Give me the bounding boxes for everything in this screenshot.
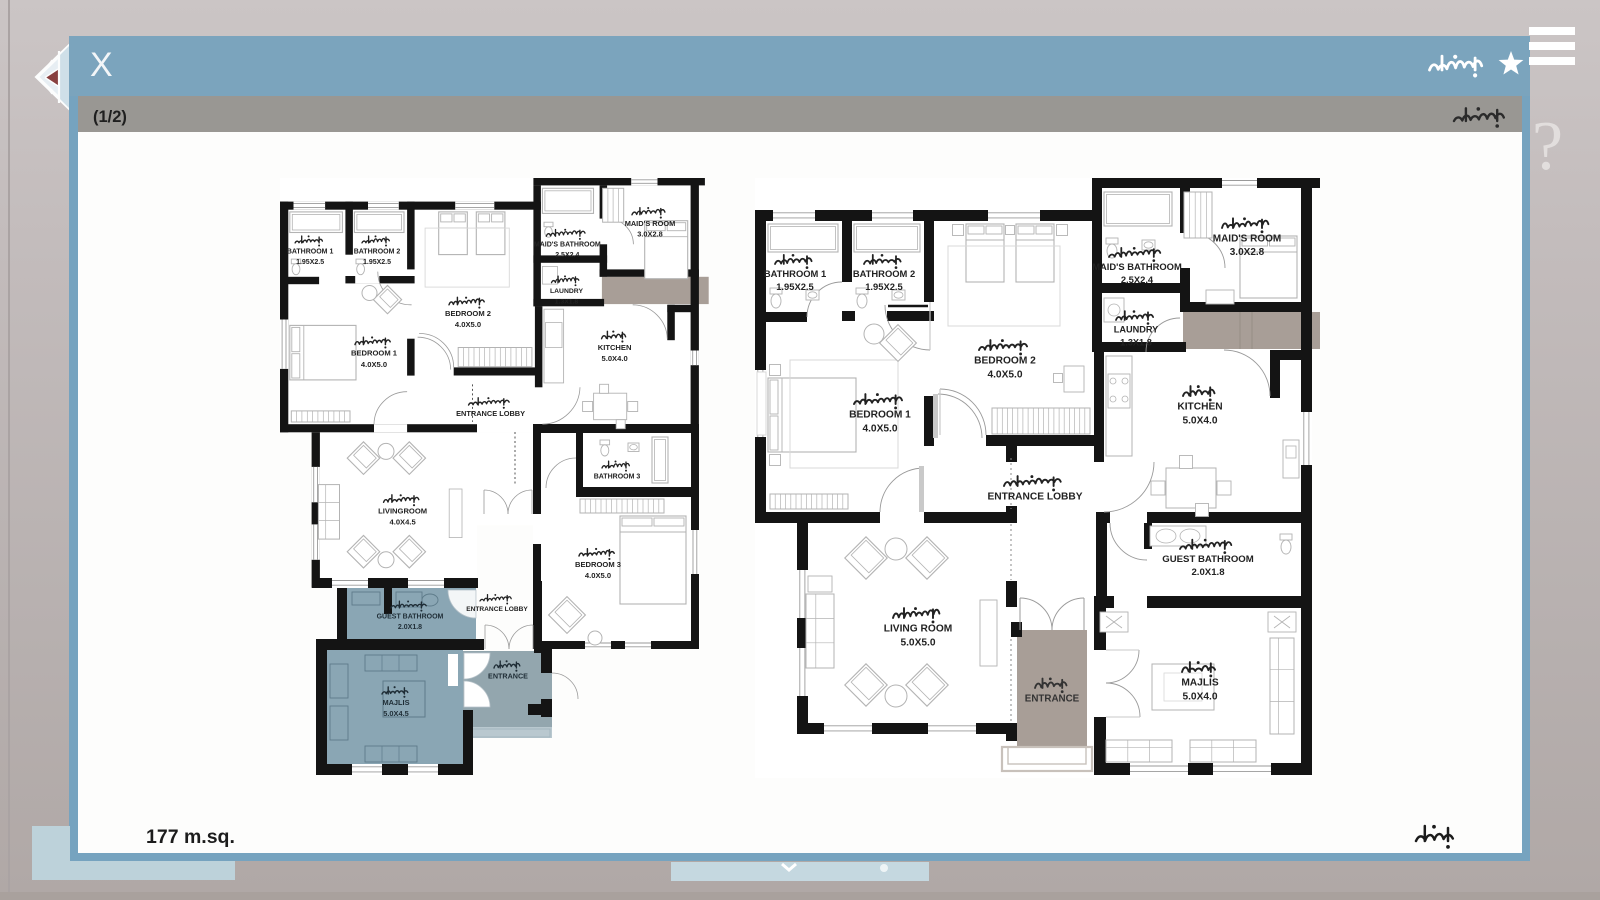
svg-text:4.0X5.0: 4.0X5.0 [987,369,1022,380]
svg-text:GUEST BATHROOM: GUEST BATHROOM [1162,554,1254,565]
svg-text:1.95X2.5: 1.95X2.5 [865,281,903,292]
svg-text:X: X [90,46,113,84]
svg-text:4.0X5.0: 4.0X5.0 [585,571,611,580]
svg-text:BEDROOM 2: BEDROOM 2 [445,309,491,318]
svg-text:177 m.sq.: 177 m.sq. [146,826,235,848]
svg-text:5.0X4.5: 5.0X4.5 [383,709,408,718]
svg-text:5.0X4.0: 5.0X4.0 [602,354,628,363]
svg-text:1.3X1.8: 1.3X1.8 [1120,337,1152,347]
svg-text:3.0X2.8: 3.0X2.8 [1230,247,1265,258]
svg-text:BATHROOM 2: BATHROOM 2 [853,268,915,279]
svg-text:1.95X2.5: 1.95X2.5 [296,259,324,266]
svg-text:ENTRANCE: ENTRANCE [1025,693,1080,704]
svg-text:4.0X5.0: 4.0X5.0 [862,423,897,434]
svg-text:5.0X4.0: 5.0X4.0 [1182,415,1217,426]
svg-text:?: ? [1532,108,1563,185]
svg-text:BEDROOM 1: BEDROOM 1 [351,349,398,358]
svg-text:2.0X1.8: 2.0X1.8 [398,624,422,631]
svg-text:LIVINGROOM: LIVINGROOM [378,506,427,515]
svg-text:(1/2): (1/2) [93,108,127,126]
svg-text:5.0X5.0: 5.0X5.0 [900,637,935,648]
svg-text:5.0X4.0: 5.0X4.0 [1182,691,1217,702]
svg-text:1.95X2.5: 1.95X2.5 [776,281,814,292]
svg-text:BATHROOM 1: BATHROOM 1 [764,268,826,279]
svg-text:MAJLIS: MAJLIS [1181,678,1219,689]
svg-text:2.0X1.8: 2.0X1.8 [1191,567,1225,578]
svg-text:MAID'S BATHROOM: MAID'S BATHROOM [1092,261,1182,272]
svg-text:MAID'S ROOM: MAID'S ROOM [1213,234,1282,245]
svg-text:BEDROOM 3: BEDROOM 3 [575,560,621,569]
svg-text:ENTRANCE LOBBY: ENTRANCE LOBBY [456,409,525,418]
svg-text:MAJLIS: MAJLIS [382,698,409,707]
svg-text:LAUNDRY: LAUNDRY [1114,325,1159,335]
svg-text:2.5X2.4: 2.5X2.4 [555,252,579,259]
svg-text:BEDROOM 1: BEDROOM 1 [849,410,911,421]
svg-text:ENTRANCE: ENTRANCE [488,672,528,681]
svg-text:4.0X4.5: 4.0X4.5 [390,518,417,527]
svg-text:4.0X5.0: 4.0X5.0 [361,360,387,369]
svg-text:4.0X5.0: 4.0X5.0 [455,320,481,329]
svg-text:3.0X2.8: 3.0X2.8 [637,230,662,239]
svg-text:BATHROOM 1: BATHROOM 1 [287,248,334,255]
svg-text:LIVING ROOM: LIVING ROOM [884,624,952,635]
svg-text:LAUNDRY: LAUNDRY [550,288,583,295]
svg-text:1.95X2.5: 1.95X2.5 [363,259,391,266]
svg-text:BEDROOM 2: BEDROOM 2 [974,356,1036,367]
svg-text:KITCHEN: KITCHEN [1177,402,1222,413]
svg-text:ENTRANCE LOBBY: ENTRANCE LOBBY [466,606,528,613]
svg-text:ENTRANCE LOBBY: ENTRANCE LOBBY [987,492,1082,503]
svg-text:BATHROOM 3: BATHROOM 3 [594,474,641,481]
svg-text:KITCHEN: KITCHEN [598,343,632,352]
svg-text:MAID'S BATHROOM: MAID'S BATHROOM [534,242,601,249]
svg-text:2.5X2.4: 2.5X2.4 [1121,274,1154,285]
svg-text:GUEST BATHROOM: GUEST BATHROOM [377,614,444,621]
svg-text:BATHROOM 2: BATHROOM 2 [354,248,401,255]
svg-text:1.3X1.8: 1.3X1.8 [555,298,579,305]
svg-text:MAID'S ROOM: MAID'S ROOM [625,219,676,228]
